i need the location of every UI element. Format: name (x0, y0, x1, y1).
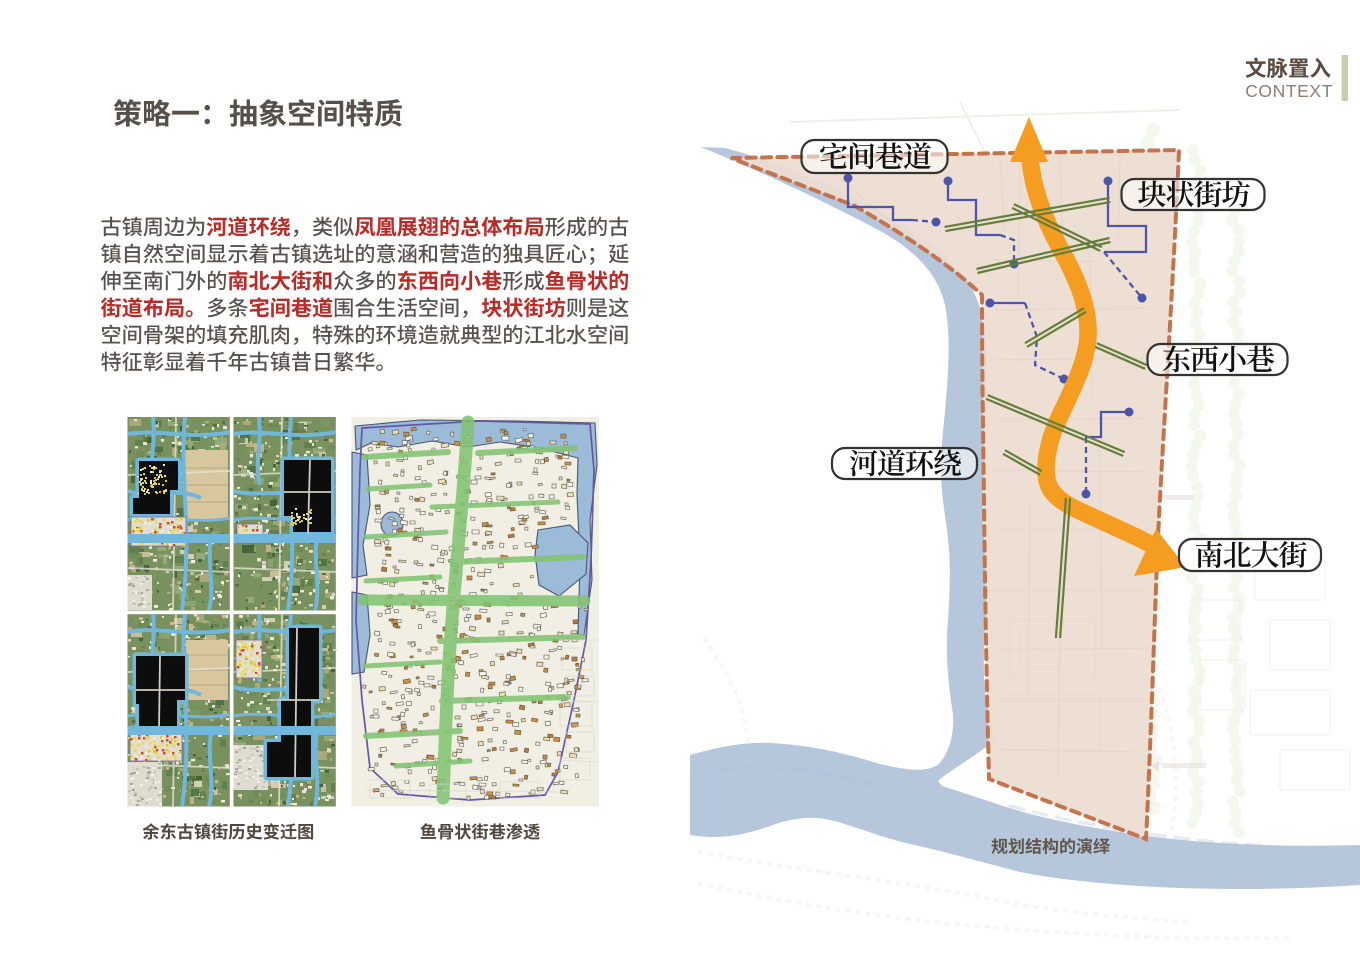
svg-text:CONTEXT: CONTEXT (1245, 81, 1333, 101)
